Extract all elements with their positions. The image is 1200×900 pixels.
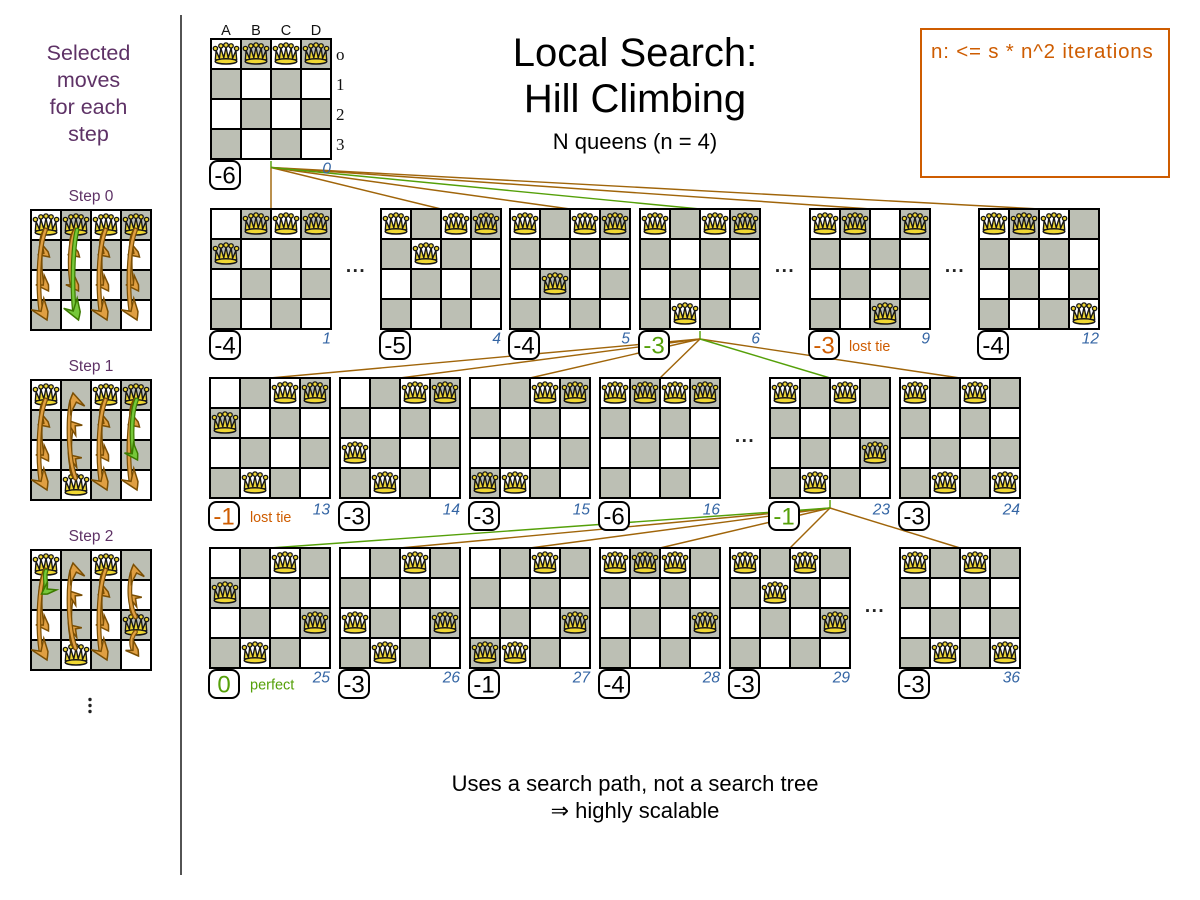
svg-text:-3: -3 [343,503,364,530]
svg-text:26: 26 [442,670,461,687]
svg-text:-4: -4 [982,332,1003,359]
svg-text:o: o [336,45,345,64]
svg-text:14: 14 [443,502,461,519]
svg-text:28: 28 [702,670,721,687]
svg-text:0: 0 [217,671,230,698]
svg-text:13: 13 [313,502,331,519]
svg-text:-1: -1 [773,503,794,530]
svg-text:-3: -3 [343,671,364,698]
svg-text:36: 36 [1003,670,1021,687]
svg-text:0: 0 [322,161,331,178]
svg-text:-1: -1 [213,503,234,530]
svg-text:...: ... [735,426,755,447]
svg-text:4: 4 [492,331,501,348]
svg-text:-4: -4 [214,332,235,359]
svg-text:...: ... [775,256,795,277]
svg-text:...: ... [945,256,965,277]
svg-text:1: 1 [322,331,331,348]
svg-text:-5: -5 [384,332,405,359]
svg-text:D: D [311,23,321,39]
svg-text:27: 27 [572,670,592,687]
svg-text:23: 23 [872,502,891,519]
svg-text:-4: -4 [513,332,534,359]
svg-text:6: 6 [751,331,760,348]
svg-text:-3: -3 [903,671,924,698]
svg-text:9: 9 [921,331,930,348]
svg-text:perfect: perfect [250,678,294,694]
svg-text:-3: -3 [733,671,754,698]
svg-text:-3: -3 [813,332,834,359]
svg-text:-1: -1 [473,671,494,698]
svg-text:-3: -3 [903,503,924,530]
svg-text:3: 3 [336,135,345,154]
svg-text:1: 1 [336,75,345,94]
svg-text:25: 25 [312,670,331,687]
svg-text:lost tie: lost tie [250,510,291,526]
svg-text:A: A [221,23,231,39]
svg-text:16: 16 [703,502,721,519]
svg-text:C: C [281,23,291,39]
svg-text:12: 12 [1082,331,1100,348]
svg-text:24: 24 [1002,502,1021,519]
svg-text:-6: -6 [603,503,624,530]
svg-text:B: B [251,23,261,39]
svg-text:15: 15 [573,502,591,519]
svg-text:5: 5 [621,331,630,348]
svg-text:-3: -3 [643,332,664,359]
svg-text:...: ... [865,596,885,617]
svg-text:...: ... [346,256,366,277]
svg-text:2: 2 [336,105,345,124]
svg-text:-3: -3 [473,503,494,530]
svg-text:-6: -6 [214,162,235,189]
svg-text:lost tie: lost tie [849,339,890,355]
svg-text:29: 29 [832,670,851,687]
svg-text:-4: -4 [603,671,624,698]
